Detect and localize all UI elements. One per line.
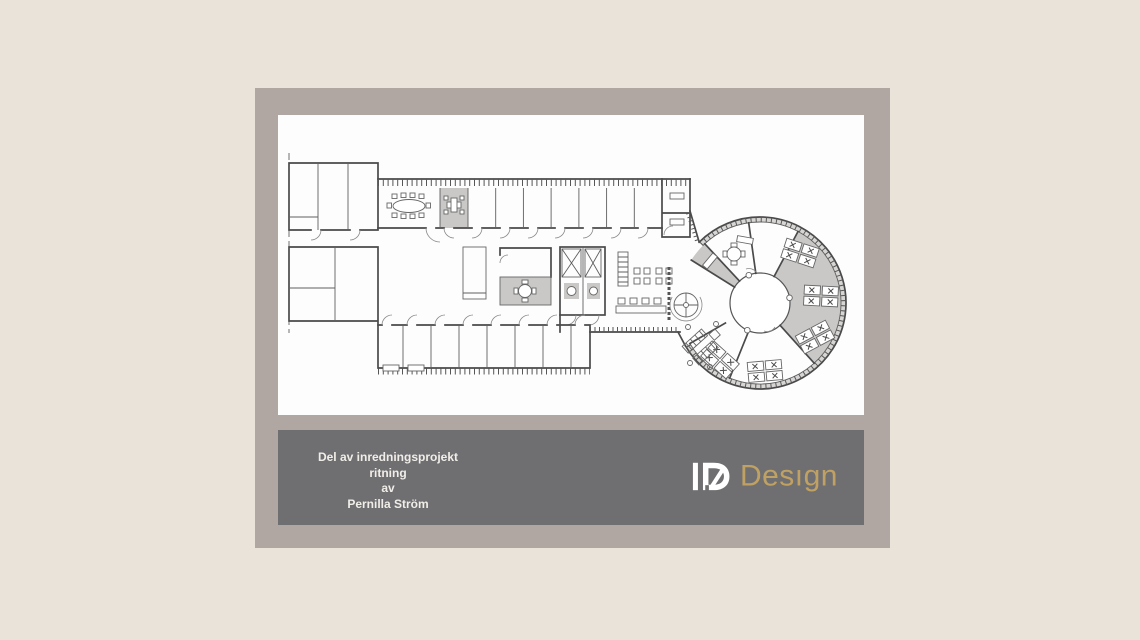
caption-line-4: Pernilla Ström (298, 497, 478, 513)
floor-plan-drawing (278, 115, 864, 415)
id-design-logo: Desıgn (692, 457, 838, 495)
core-zone (463, 247, 702, 332)
circular-wing (682, 217, 846, 389)
caption-bar: Del av inredningsprojekt ritning av Pern… (278, 430, 864, 525)
caption-line-1: Del av inredningsprojekt (298, 450, 478, 466)
caption-line-2: ritning (298, 466, 478, 482)
slide-frame: Del av inredningsprojekt ritning av Pern… (255, 88, 890, 548)
junction (678, 211, 699, 346)
west-wing (289, 163, 378, 325)
logo-wordmark: Desıgn (740, 461, 838, 491)
project-caption: Del av inredningsprojekt ritning av Pern… (298, 450, 478, 513)
floor-plan-panel (278, 115, 864, 415)
south-office-row (378, 315, 680, 372)
shaded-zones (440, 188, 841, 363)
id-logo-mark-icon (692, 457, 734, 495)
caption-line-3: av (298, 481, 478, 497)
north-office-row (378, 179, 690, 242)
